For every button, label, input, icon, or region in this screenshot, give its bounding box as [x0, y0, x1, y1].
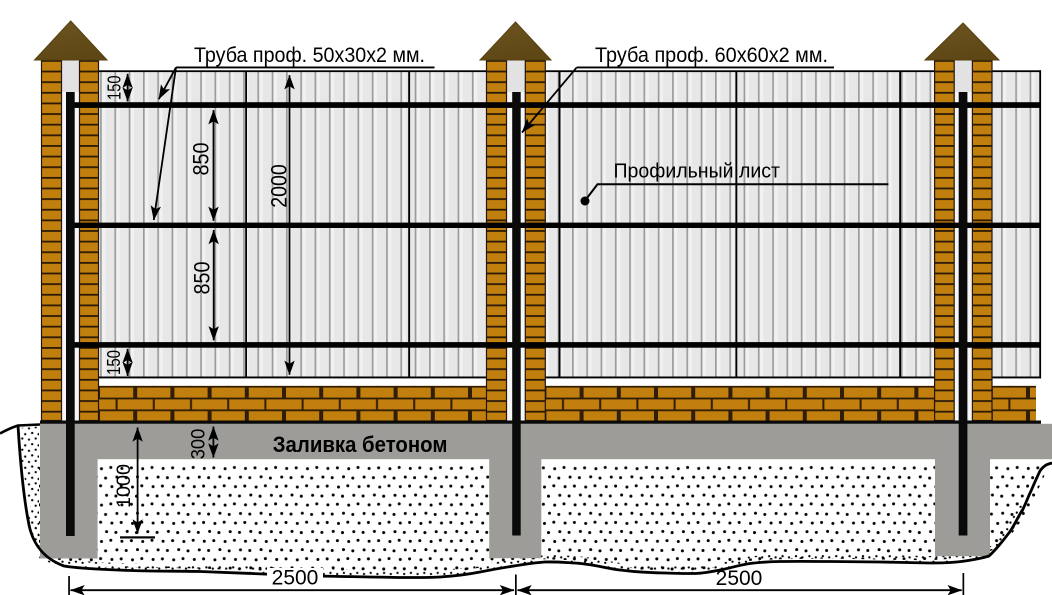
svg-text:300: 300 — [189, 429, 210, 460]
svg-text:850: 850 — [188, 143, 213, 176]
svg-text:150: 150 — [103, 350, 124, 375]
svg-text:850: 850 — [189, 262, 214, 295]
svg-text:Труба проф. 60х60х2 мм.: Труба проф. 60х60х2 мм. — [595, 44, 828, 67]
svg-text:2000: 2000 — [267, 164, 292, 208]
svg-text:Профильный лист: Профильный лист — [614, 161, 781, 183]
svg-text:1000: 1000 — [114, 464, 135, 508]
svg-text:Заливка бетоном: Заливка бетоном — [273, 432, 448, 457]
svg-text:2500: 2500 — [272, 567, 319, 590]
svg-text:2500: 2500 — [716, 567, 763, 590]
svg-text:Труба проф. 50х30х2 мм.: Труба проф. 50х30х2 мм. — [194, 44, 425, 67]
svg-text:150: 150 — [104, 75, 125, 100]
